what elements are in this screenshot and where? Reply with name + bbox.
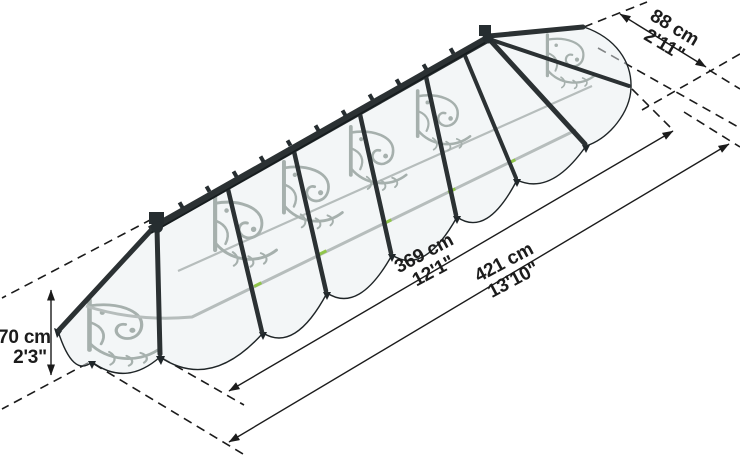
awning-illustration bbox=[0, 0, 740, 462]
dimension-label-height: 70 cm 2'3" bbox=[0, 328, 47, 368]
awning-dimension-diagram: 88 cm 2'11" 369 cm 12'1" 421 cm 13'10" 7… bbox=[0, 0, 740, 462]
height-imperial: 2'3" bbox=[0, 348, 47, 368]
extension-line-right-b bbox=[642, 54, 740, 110]
extension-line-height-bottom bbox=[2, 363, 88, 409]
awning-canopy bbox=[54, 25, 631, 373]
height-metric: 70 cm bbox=[0, 328, 47, 348]
extension-line-inner-right bbox=[632, 89, 670, 127]
extension-line-outer-right bbox=[684, 112, 740, 147]
extension-line-outer-left bbox=[94, 364, 248, 457]
extension-line-depth-bottom bbox=[709, 70, 740, 89]
clear-panels bbox=[58, 27, 631, 373]
extension-line-depth-top bbox=[584, 2, 647, 27]
